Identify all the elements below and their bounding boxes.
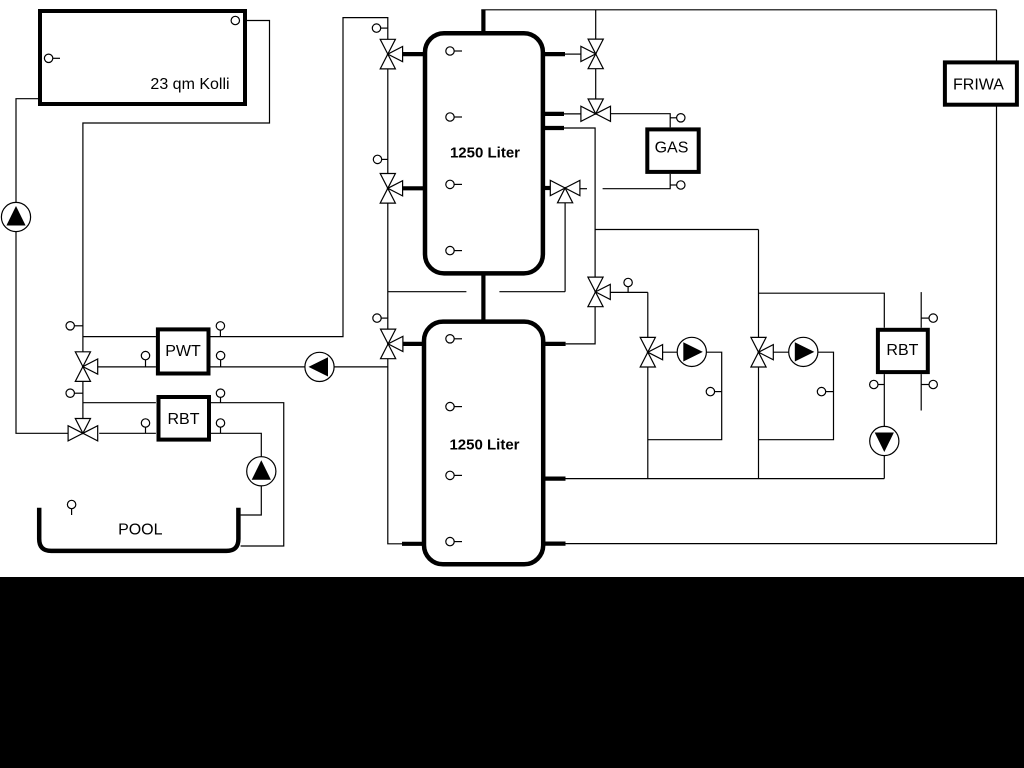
svg-text:PWT: PWT (165, 343, 201, 360)
svg-text:RBT: RBT (168, 411, 200, 428)
svg-text:23 qm Kolli: 23 qm Kolli (150, 76, 229, 93)
svg-text:FRIWA: FRIWA (953, 77, 1004, 94)
svg-text:GAS: GAS (655, 140, 689, 157)
svg-text:1250 Liter: 1250 Liter (450, 145, 520, 162)
svg-text:RBT: RBT (886, 342, 918, 359)
svg-text:1250 Liter: 1250 Liter (449, 437, 519, 454)
svg-text:POOL: POOL (118, 521, 163, 538)
